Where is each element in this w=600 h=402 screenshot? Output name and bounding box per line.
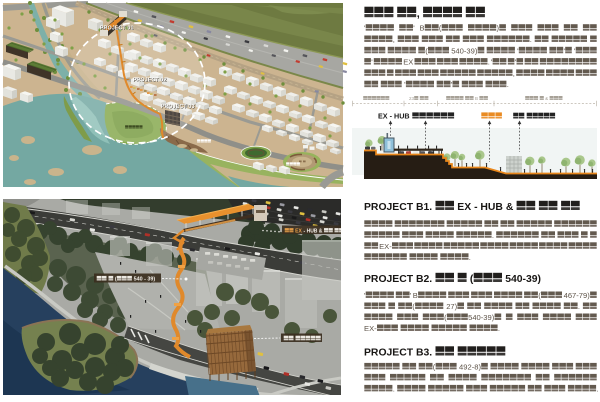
svg-text:492-8): 492-8)	[459, 362, 481, 371]
svg-text:': '	[371, 58, 373, 67]
svg-text:B: B	[475, 96, 478, 101]
svg-text:': '	[404, 80, 406, 89]
svg-text:,: ,	[393, 35, 395, 44]
svg-text:23: 23	[409, 96, 414, 101]
svg-text:B: B	[413, 291, 418, 300]
svg-text:-: -	[390, 112, 393, 121]
svg-text:PROJECT: PROJECT	[364, 202, 414, 213]
svg-text:27): 27)	[446, 302, 457, 311]
svg-text:.: .	[488, 58, 490, 67]
svg-text:540-39): 540-39)	[505, 274, 541, 285]
svg-text:,: ,	[513, 69, 515, 78]
svg-text:(: (	[444, 313, 447, 322]
svg-text:PROJECT 02: PROJECT 02	[133, 78, 167, 84]
svg-text:&: &	[506, 202, 514, 213]
svg-text:(: (	[115, 277, 117, 283]
svg-text:B1.: B1.	[416, 202, 432, 213]
svg-text:540-39): 540-39)	[451, 46, 478, 55]
svg-text:39): 39)	[147, 277, 155, 283]
svg-text:B3.: B3.	[416, 348, 432, 359]
svg-text:B2.: B2.	[416, 274, 432, 285]
svg-text:.: .	[507, 80, 509, 89]
svg-text:.: .	[393, 384, 395, 393]
svg-text:': '	[491, 58, 493, 67]
svg-text:&: &	[319, 228, 323, 234]
svg-text:540: 540	[134, 277, 143, 283]
svg-text:540-39): 540-39)	[468, 313, 495, 322]
svg-text:(: (	[470, 274, 474, 285]
svg-text:.: .	[469, 253, 471, 262]
svg-text:EX: EX	[457, 202, 471, 213]
svg-text:(: (	[439, 24, 442, 33]
svg-text:PROJECT: PROJECT	[364, 274, 414, 285]
svg-text:': '	[515, 58, 517, 67]
svg-text:EX: EX	[295, 228, 302, 234]
svg-text:&: &	[545, 96, 548, 101]
svg-text:.: .	[498, 324, 500, 333]
svg-text:PROJECT 01: PROJECT 01	[100, 26, 134, 32]
svg-text:HUB: HUB	[394, 112, 410, 121]
svg-text:,: ,	[417, 8, 420, 20]
svg-text:(: (	[412, 302, 415, 311]
svg-text:.: .	[596, 384, 598, 393]
svg-text:-: -	[474, 202, 478, 213]
svg-text:HUB: HUB	[307, 228, 318, 234]
svg-text:.: .	[530, 35, 532, 44]
svg-text:PROJECT 03: PROJECT 03	[161, 104, 195, 110]
svg-text:': '	[410, 291, 412, 300]
svg-text:.: .	[578, 302, 580, 311]
svg-text:.: .	[492, 231, 494, 240]
svg-text:HUB: HUB	[480, 202, 503, 213]
svg-text:(: (	[433, 362, 436, 371]
svg-text:(: (	[538, 291, 541, 300]
svg-text:EX: EX	[403, 58, 413, 67]
svg-text:EX-: EX-	[364, 324, 377, 333]
svg-text:': '	[413, 24, 415, 33]
svg-text:(: (	[425, 46, 428, 55]
svg-text:PROJECT: PROJECT	[364, 348, 414, 359]
svg-text:EX-: EX-	[379, 242, 392, 251]
svg-text:B: B	[420, 24, 425, 33]
svg-text:): )	[497, 24, 500, 33]
svg-text:467-79): 467-79)	[564, 291, 591, 300]
svg-text:-: -	[144, 277, 146, 283]
svg-text:EX: EX	[378, 112, 388, 121]
